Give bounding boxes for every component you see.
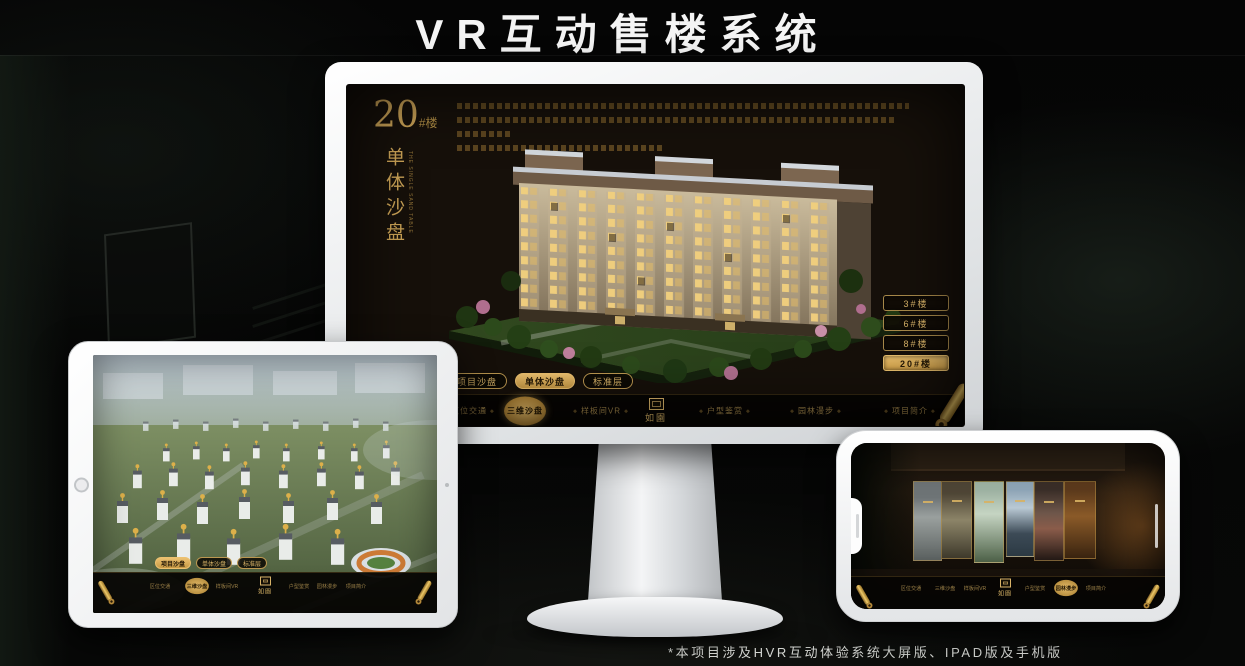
phone-brand-logo: 如園 — [998, 579, 1012, 598]
nav-item-unit-gallery[interactable]: 户型鉴赏 — [699, 405, 751, 416]
scene-card-6[interactable] — [1064, 481, 1096, 559]
tablet-sub-tab-project-sandtable[interactable]: 项目沙盘 — [155, 557, 191, 569]
section-title-vertical: 单体沙盘 — [381, 147, 408, 247]
phone-nav-item-3d-sandtable[interactable]: 三维沙盘 — [935, 584, 955, 592]
brand-logo: 如園 — [645, 398, 667, 424]
floor-button-3[interactable]: 3#楼 — [883, 295, 949, 311]
seal-icon — [648, 398, 663, 410]
tablet-scroll-handle-left-icon[interactable] — [97, 579, 116, 604]
scene-card-3[interactable] — [974, 481, 1004, 563]
phone-scroll-handle-right-icon[interactable] — [1143, 583, 1162, 608]
tablet-nav-item-garden-walk[interactable]: 园林漫步 — [317, 582, 337, 590]
tablet-nav-item-location-traffic[interactable]: 区位交通 — [150, 582, 170, 590]
floor-button-8[interactable]: 8#楼 — [883, 335, 949, 351]
phone-screen: 区位交通 三维沙盘 样板间VR 如園 户型鉴赏 园林漫步 项目简介 — [851, 443, 1165, 609]
tablet-home-button[interactable] — [74, 477, 89, 492]
floor-button-6[interactable]: 6#楼 — [883, 315, 949, 331]
tablet-nav-item-project-intro[interactable]: 项目简介 — [346, 582, 366, 590]
scene-card-2[interactable] — [941, 481, 972, 559]
monitor-stand-base — [527, 597, 783, 637]
background-plaque — [104, 222, 196, 350]
phone-nav-item-unit-gallery[interactable]: 户型鉴赏 — [1025, 584, 1045, 592]
phone-nav-item-showroom-vr[interactable]: 样板间VR — [964, 584, 986, 592]
tablet-sub-tab-single-sandtable[interactable]: 单体沙盘 — [196, 557, 232, 569]
promo-canvas: VR互动售楼系统 *本项目涉及HVR互动体验系统大屏版、IPAD版及手机版 20… — [0, 0, 1245, 666]
phone-frame: 区位交通 三维沙盘 样板间VR 如園 户型鉴赏 园林漫步 项目简介 — [836, 430, 1180, 622]
nav-item-3d-sandtable[interactable]: 三维沙盘 — [504, 396, 546, 425]
tablet-nav-item-showroom-vr[interactable]: 样板间VR — [216, 582, 238, 590]
tablet-screen: 项目沙盘 单体沙盘 标准层 区位交通 三维沙盘 样板间VR 如園 户型鉴赏 园林… — [93, 355, 437, 613]
tablet-frame: 项目沙盘 单体沙盘 标准层 区位交通 三维沙盘 样板间VR 如園 户型鉴赏 园林… — [68, 341, 458, 628]
building-3d-render — [431, 131, 921, 383]
floor-button-20[interactable]: 20#楼 — [883, 355, 949, 371]
phone-home-indicator[interactable] — [1155, 504, 1158, 548]
phone-navbar: 区位交通 三维沙盘 样板间VR 如園 户型鉴赏 园林漫步 项目简介 — [851, 576, 1165, 609]
phone-nav-item-project-intro[interactable]: 项目简介 — [1086, 584, 1106, 592]
monitor-stand-neck — [588, 443, 722, 601]
phone-nav-item-garden-walk[interactable]: 园林漫步 — [1054, 580, 1078, 596]
sub-tab-standard-floor[interactable]: 标准层 — [583, 373, 633, 389]
background-strip — [0, 55, 70, 666]
scene-card-1[interactable] — [913, 481, 942, 561]
page-title: VR互动售楼系统 — [0, 1, 1245, 62]
nav-item-showroom-vr[interactable]: 样板间VR — [573, 405, 629, 416]
section-subtitle-vertical: THE SINGLE SAND TABLE — [407, 151, 413, 234]
phone-scroll-handle-left-icon[interactable] — [855, 583, 874, 608]
scene-card-4[interactable] — [1006, 481, 1034, 557]
tablet-nav-item-unit-gallery[interactable]: 户型鉴赏 — [289, 582, 309, 590]
phone-nav-item-location-traffic[interactable]: 区位交通 — [901, 584, 921, 592]
building-headline: 20#楼 — [373, 95, 438, 136]
nav-item-project-intro[interactable]: 项目简介 — [884, 405, 936, 416]
tablet-seal-icon — [259, 577, 270, 586]
sub-tab-single-sandtable[interactable]: 单体沙盘 — [515, 373, 575, 389]
tablet-navbar: 区位交通 三维沙盘 样板间VR 如園 户型鉴赏 园林漫步 项目简介 — [93, 572, 437, 613]
scene-card-5[interactable] — [1034, 481, 1064, 561]
tablet-sub-tab-group: 项目沙盘 单体沙盘 标准层 — [155, 557, 267, 569]
floor-button-group: 3#楼 6#楼 8#楼 20#楼 — [883, 295, 949, 371]
tablet-scroll-handle-right-icon[interactable] — [415, 579, 434, 604]
tablet-camera-icon — [445, 483, 449, 487]
phone-notch — [851, 498, 862, 554]
tablet-brand-logo: 如園 — [258, 577, 272, 596]
scroll-handle-icon[interactable] — [934, 381, 965, 427]
sub-tab-group: 项目沙盘 单体沙盘 标准层 — [447, 373, 633, 389]
tablet-nav-item-3d-sandtable[interactable]: 三维沙盘 — [185, 578, 209, 594]
tablet-sub-tab-standard-floor[interactable]: 标准层 — [237, 557, 267, 569]
phone-seal-icon — [999, 579, 1010, 588]
nav-item-garden-walk[interactable]: 园林漫步 — [790, 405, 842, 416]
building-number-suffix: #楼 — [419, 116, 438, 130]
building-number: 20 — [373, 95, 419, 136]
